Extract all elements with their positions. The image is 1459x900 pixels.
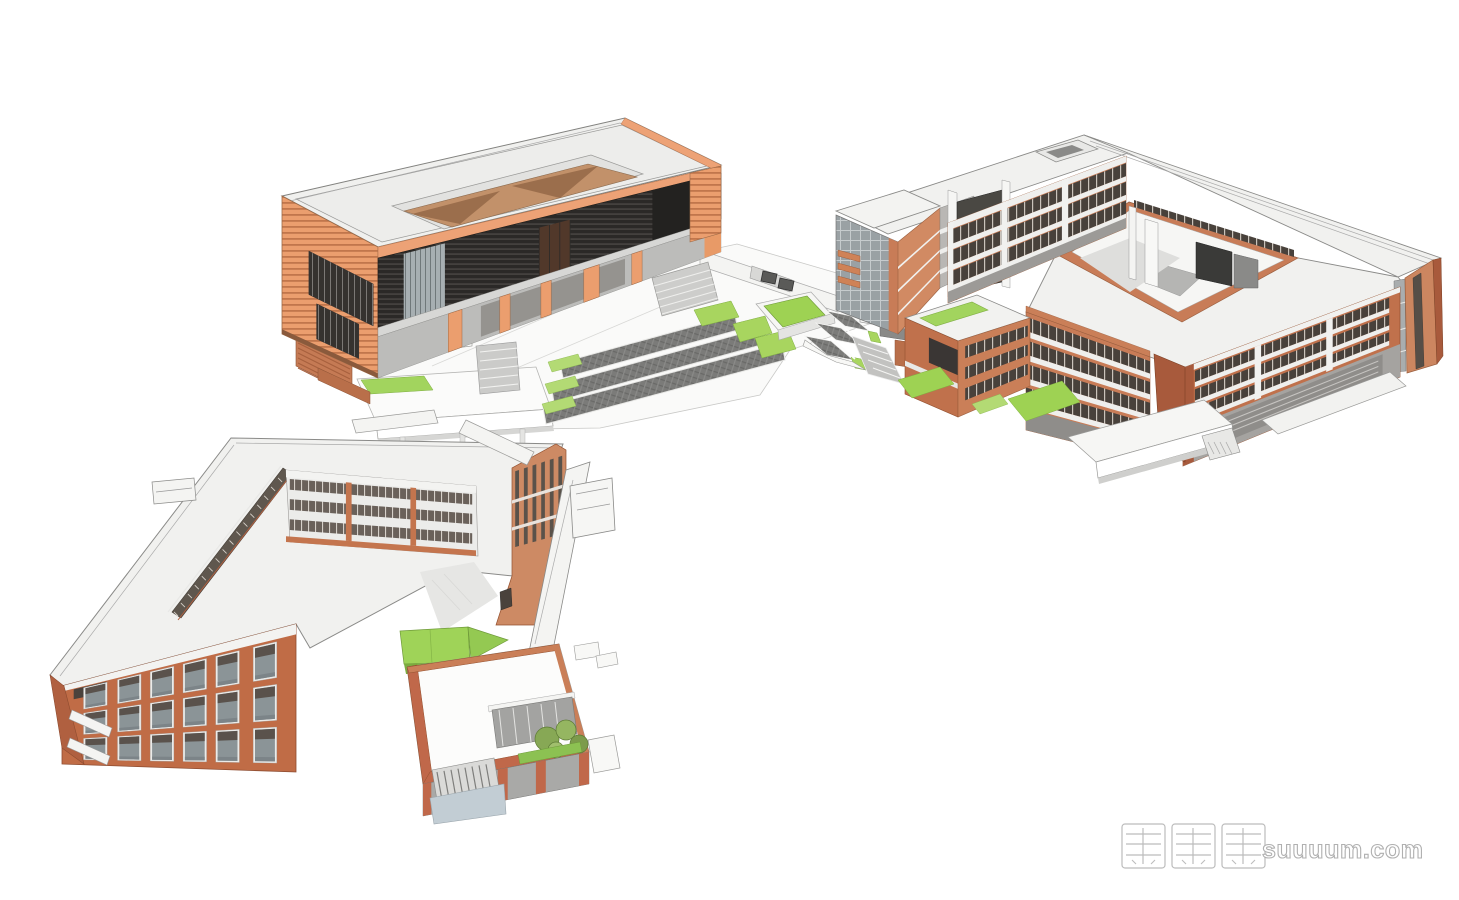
svg-text:suuuum.com: suuuum.com xyxy=(1262,836,1424,864)
